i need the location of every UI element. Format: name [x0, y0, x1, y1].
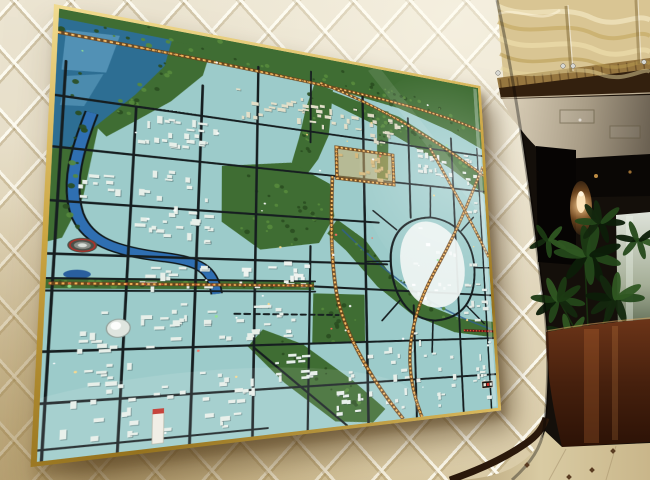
- city-model-map: [37, 9, 498, 462]
- lobby-photo: Photograph of an illuminated city master…: [0, 0, 650, 480]
